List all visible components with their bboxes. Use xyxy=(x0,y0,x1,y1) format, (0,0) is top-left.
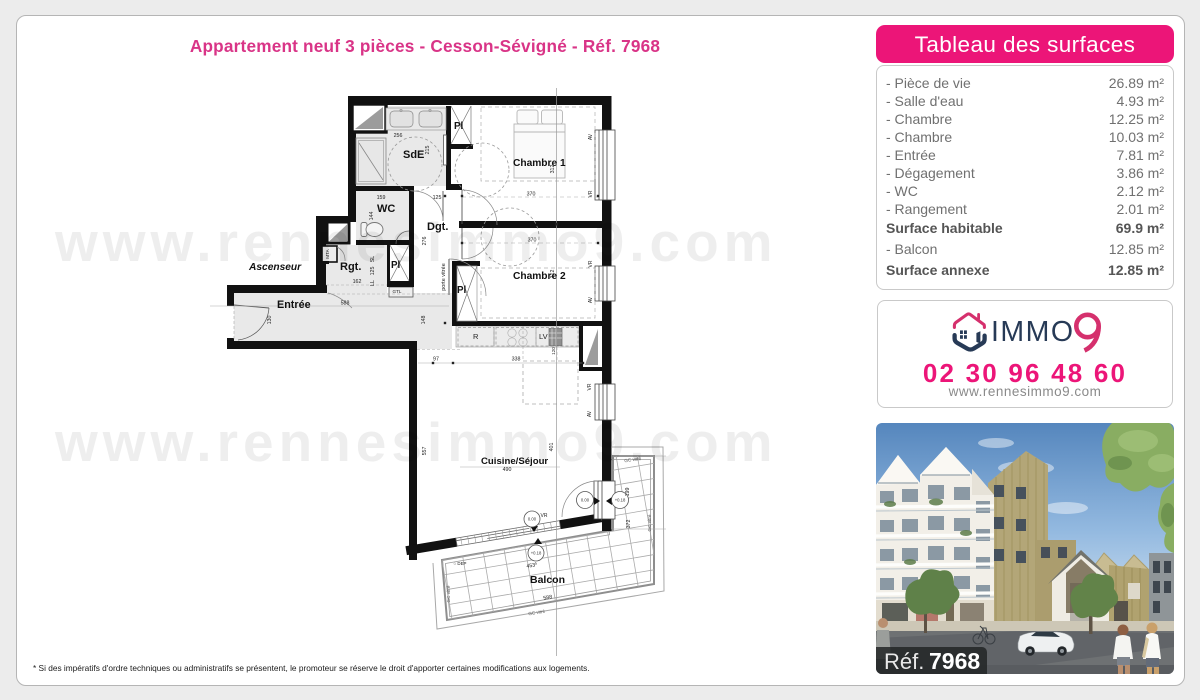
svg-text:GC vitré: GC vitré xyxy=(647,514,652,531)
svg-text:312: 312 xyxy=(550,165,556,174)
svg-text:0.00: 0.00 xyxy=(581,498,590,503)
svg-text:+0.18: +0.18 xyxy=(615,498,626,503)
svg-text:www.rennesimmo9.com: www.rennesimmo9.com xyxy=(54,411,778,473)
svg-text:159: 159 xyxy=(377,195,386,201)
svg-text:370: 370 xyxy=(527,192,536,198)
svg-text:588: 588 xyxy=(341,301,350,307)
svg-text:338: 338 xyxy=(512,357,521,363)
svg-text:Réf.: Réf. xyxy=(884,649,924,674)
svg-text:Chambre 1: Chambre 1 xyxy=(513,158,566,169)
svg-text:GC vitré: GC vitré xyxy=(446,585,451,602)
svg-text:7968: 7968 xyxy=(929,648,980,674)
svg-text:GTL: GTL xyxy=(393,289,402,294)
svg-text:R: R xyxy=(473,332,479,341)
svg-text:+0.18: +0.18 xyxy=(531,551,542,556)
svg-text:130: 130 xyxy=(267,316,273,325)
svg-text:199: 199 xyxy=(625,488,631,497)
svg-text:LL: LL xyxy=(370,280,376,286)
svg-text:AV: AV xyxy=(588,133,594,140)
svg-text:LV: LV xyxy=(539,332,548,341)
svg-text:148: 148 xyxy=(421,316,427,325)
svg-text:Entrée: Entrée xyxy=(277,299,311,311)
svg-text:372: 372 xyxy=(626,520,632,529)
svg-text:97: 97 xyxy=(433,357,439,363)
svg-text:SdE: SdE xyxy=(403,149,424,161)
svg-text:215: 215 xyxy=(425,146,431,155)
svg-text:www.rennesimmo9.com: www.rennesimmo9.com xyxy=(54,211,778,273)
svg-text:VR: VR xyxy=(588,190,594,197)
svg-text:Balcon: Balcon xyxy=(530,574,565,586)
svg-text:Pl: Pl xyxy=(454,121,464,132)
svg-text:120: 120 xyxy=(551,347,556,355)
svg-text:256: 256 xyxy=(394,133,403,139)
svg-text:0.00: 0.00 xyxy=(528,517,537,522)
svg-text:GC vitré: GC vitré xyxy=(528,609,546,617)
svg-text:Pl: Pl xyxy=(457,285,467,296)
svg-text:○ DEP: ○ DEP xyxy=(454,561,467,566)
svg-text:VR: VR xyxy=(541,513,548,519)
svg-text:AV: AV xyxy=(588,296,594,303)
svg-text:IMMO: IMMO xyxy=(991,316,1075,348)
svg-text:125: 125 xyxy=(433,195,442,201)
svg-text:VR: VR xyxy=(587,383,593,390)
svg-text:162: 162 xyxy=(353,279,362,285)
